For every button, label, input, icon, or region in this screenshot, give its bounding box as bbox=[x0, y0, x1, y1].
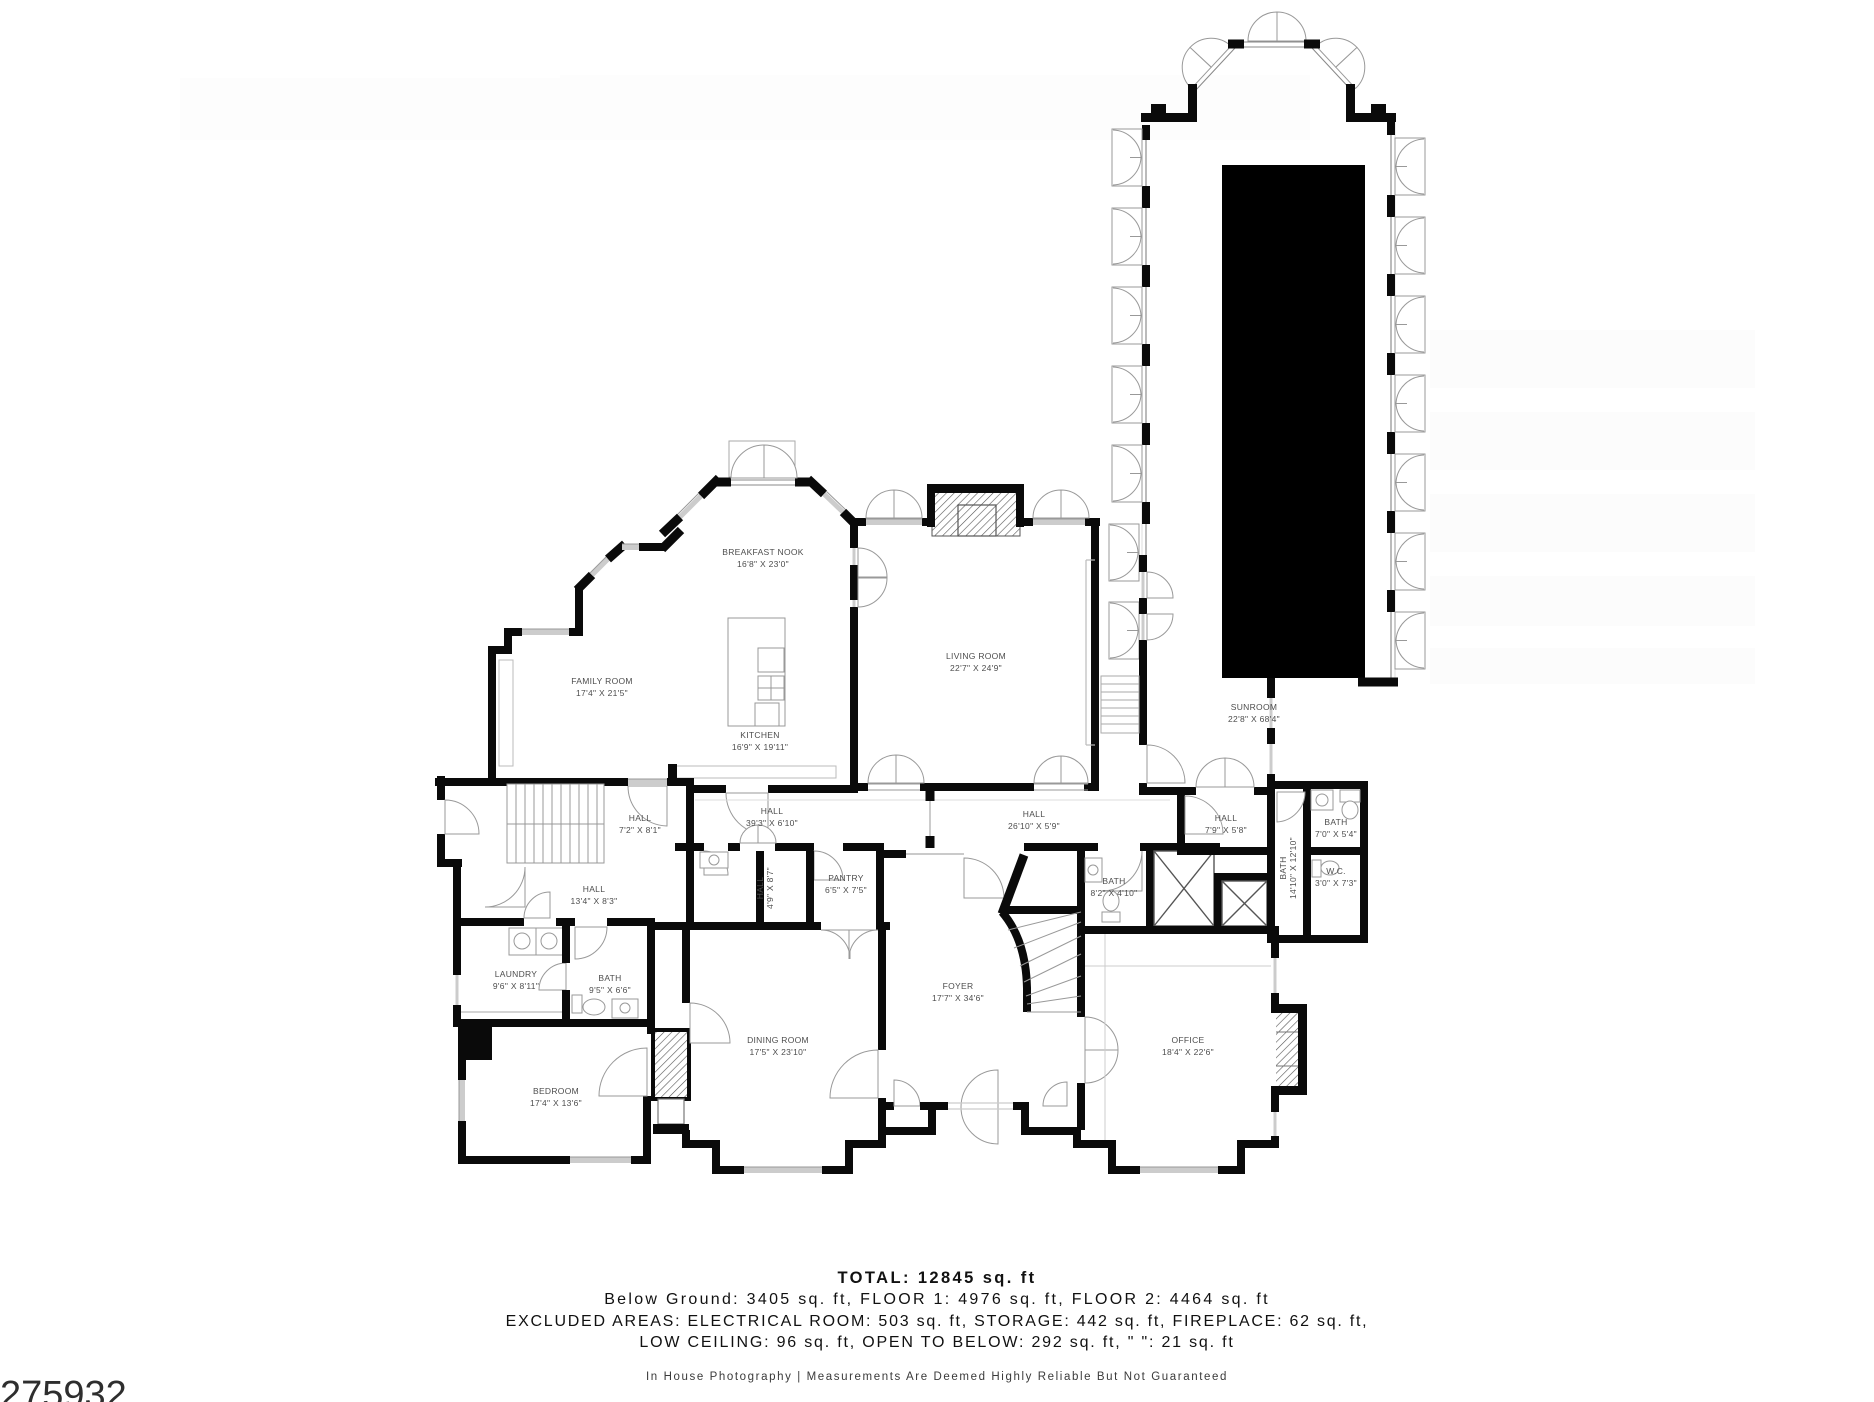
svg-text:FOYER: FOYER bbox=[943, 981, 974, 991]
svg-text:HALL: HALL bbox=[1215, 813, 1237, 823]
svg-text:BATH: BATH bbox=[1102, 876, 1125, 886]
svg-text:13'4" X 8'3": 13'4" X 8'3" bbox=[571, 896, 618, 906]
svg-text:7'9" X 5'8": 7'9" X 5'8" bbox=[1205, 825, 1247, 835]
svg-text:W.C.: W.C. bbox=[1326, 866, 1346, 876]
svg-text:7'0" X 5'4": 7'0" X 5'4" bbox=[1315, 829, 1357, 839]
svg-text:16'8" X 23'0": 16'8" X 23'0" bbox=[737, 559, 789, 569]
svg-text:3'0" X 7'3": 3'0" X 7'3" bbox=[1315, 878, 1357, 888]
svg-text:FAMILY ROOM: FAMILY ROOM bbox=[571, 676, 633, 686]
svg-text:SUNROOM: SUNROOM bbox=[1231, 702, 1278, 712]
svg-text:39'3" X 6'10": 39'3" X 6'10" bbox=[746, 818, 798, 828]
svg-text:14'10" X 12'10": 14'10" X 12'10" bbox=[1288, 837, 1298, 899]
svg-text:HALL: HALL bbox=[1023, 809, 1045, 819]
svg-text:16'9" X 19'11": 16'9" X 19'11" bbox=[732, 742, 788, 752]
svg-text:BREAKFAST NOOK: BREAKFAST NOOK bbox=[722, 547, 804, 557]
svg-text:9'5" X 6'6": 9'5" X 6'6" bbox=[589, 985, 631, 995]
svg-text:4'9" X 8'7": 4'9" X 8'7" bbox=[765, 867, 775, 909]
svg-text:OFFICE: OFFICE bbox=[1172, 1035, 1205, 1045]
svg-text:17'7" X 34'6": 17'7" X 34'6" bbox=[932, 993, 984, 1003]
svg-text:7'2" X 8'1": 7'2" X 8'1" bbox=[619, 825, 661, 835]
svg-text:PANTRY: PANTRY bbox=[828, 873, 864, 883]
svg-text:HALL: HALL bbox=[761, 806, 783, 816]
svg-text:22'7" X 24'9": 22'7" X 24'9" bbox=[950, 663, 1002, 673]
svg-text:6'5" X 7'5": 6'5" X 7'5" bbox=[825, 885, 867, 895]
svg-text:18'4" X 22'6": 18'4" X 22'6" bbox=[1162, 1047, 1214, 1057]
svg-text:17'4" X 21'5": 17'4" X 21'5" bbox=[576, 688, 628, 698]
svg-text:26'10" X 5'9": 26'10" X 5'9" bbox=[1008, 821, 1060, 831]
svg-text:22'8" X 68'4": 22'8" X 68'4" bbox=[1228, 714, 1280, 724]
svg-text:9'6" X 8'11": 9'6" X 8'11" bbox=[493, 981, 539, 991]
svg-text:LIVING ROOM: LIVING ROOM bbox=[946, 651, 1006, 661]
svg-text:HALL: HALL bbox=[755, 877, 765, 899]
svg-text:KITCHEN: KITCHEN bbox=[740, 730, 779, 740]
svg-text:LAUNDRY: LAUNDRY bbox=[495, 969, 538, 979]
svg-text:BATH: BATH bbox=[598, 973, 621, 983]
svg-text:DINING ROOM: DINING ROOM bbox=[747, 1035, 809, 1045]
svg-text:HALL: HALL bbox=[629, 813, 651, 823]
svg-text:HALL: HALL bbox=[583, 884, 605, 894]
svg-text:17'5" X 23'10": 17'5" X 23'10" bbox=[750, 1047, 807, 1057]
svg-text:BEDROOM: BEDROOM bbox=[533, 1086, 579, 1096]
svg-text:BATH: BATH bbox=[1324, 817, 1347, 827]
svg-text:BATH: BATH bbox=[1278, 856, 1288, 879]
svg-text:17'4" X 13'6": 17'4" X 13'6" bbox=[530, 1098, 582, 1108]
svg-text:8'2" X 4'10": 8'2" X 4'10" bbox=[1091, 888, 1138, 898]
